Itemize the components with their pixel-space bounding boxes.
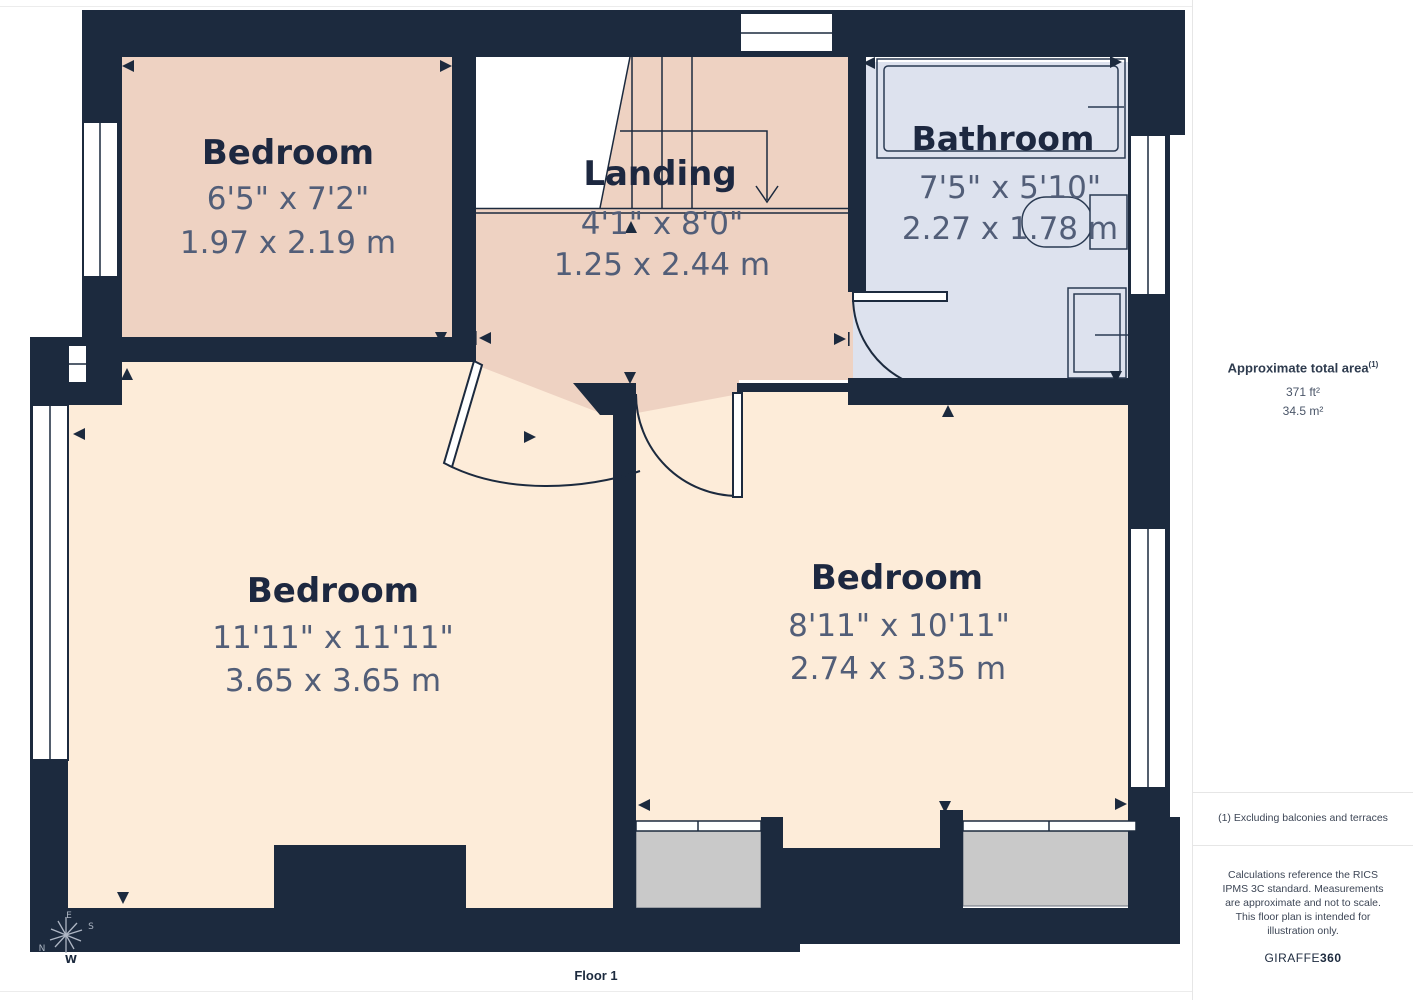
room-metric-label: 2.27 x 1.78 m [902, 211, 1118, 247]
compass-s-label: S [88, 922, 94, 932]
room-imperial-label: 4'1" x 8'0" [581, 206, 744, 242]
floor-label: Floor 1 [0, 968, 1192, 983]
compass-w-label: W [65, 953, 77, 966]
floor-plan-svg: E S N W Bedroom 6'5" x 7'2" 1.97 x 2.19 … [0, 0, 1192, 1000]
door-leaf-bathroom [853, 292, 947, 301]
brand-logo: GIRAFFE360 [1193, 951, 1413, 965]
area-sqm: 34.5 m² [1193, 404, 1413, 418]
bedroom-bottom-right-floor-strip [783, 823, 940, 848]
room-name-label: Bathroom [912, 119, 1095, 158]
sidebar-divider [1193, 845, 1413, 846]
floor-plan: E S N W Bedroom 6'5" x 7'2" 1.97 x 2.19 … [0, 0, 1192, 1000]
porch-right [963, 831, 1136, 906]
room-name-label: Bedroom [247, 571, 419, 611]
area-sqft: 371 ft² [1193, 385, 1413, 399]
room-imperial-label: 6'5" x 7'2" [207, 181, 370, 217]
room-imperial-label: 7'5" x 5'10" [919, 170, 1101, 206]
room-name-label: Bedroom [202, 133, 374, 173]
porch-left [636, 831, 761, 908]
room-metric-label: 3.65 x 3.65 m [225, 663, 441, 699]
room-name-label: Landing [583, 154, 736, 194]
brand-regular: GIRAFFE [1264, 951, 1320, 965]
room-metric-label: 1.25 x 2.44 m [554, 247, 770, 283]
info-sidebar: Approximate total area(1) 371 ft² 34.5 m… [1192, 0, 1413, 1000]
room-imperial-label: 11'11" x 11'11" [212, 620, 453, 656]
total-area-label: Approximate total area [1228, 360, 1369, 375]
room-name-label: Bedroom [811, 558, 983, 598]
room-metric-label: 2.74 x 3.35 m [790, 651, 1006, 687]
compass-n-label: N [39, 944, 46, 954]
door-leaf-bedroom-bottom-right [733, 393, 742, 497]
bottom-edge-line [0, 991, 1192, 992]
room-metric-label: 1.97 x 2.19 m [180, 225, 396, 261]
room-imperial-label: 8'11" x 10'11" [788, 608, 1010, 644]
total-area-superscript: (1) [1369, 360, 1379, 369]
brand-bold: 360 [1320, 951, 1342, 965]
compass-e-label: E [66, 911, 72, 921]
sidebar-divider [1193, 792, 1413, 793]
disclaimer-text: Calculations reference the RICS IPMS 3C … [1219, 868, 1387, 938]
area-footnote: (1) Excluding balconies and terraces [1193, 812, 1413, 824]
total-area-title: Approximate total area(1) [1193, 360, 1413, 375]
top-edge-line [0, 6, 1192, 7]
